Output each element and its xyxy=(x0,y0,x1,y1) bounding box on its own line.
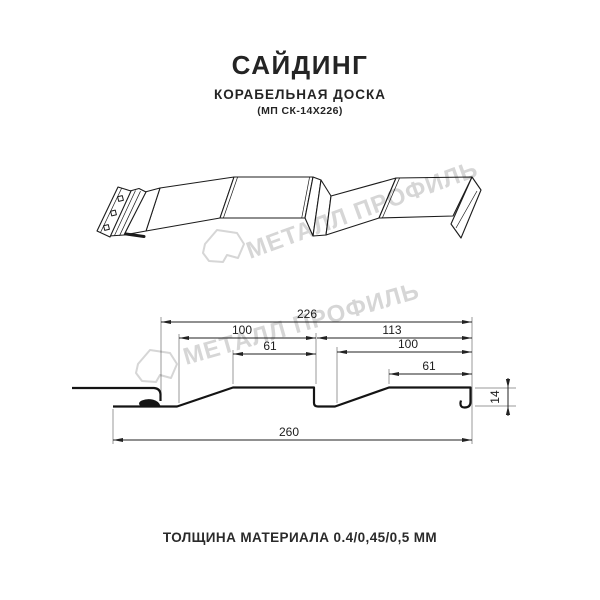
material-thickness-note: ТОЛЩИНА МАТЕРИАЛА 0.4/0,45/0,5 ММ xyxy=(0,530,600,545)
dimension-lines xyxy=(113,322,508,440)
section-profile xyxy=(72,388,471,408)
metal-profil-logo-icon xyxy=(136,350,177,382)
3d-slope1-face xyxy=(146,177,234,231)
metal-profil-logo-icon xyxy=(203,230,244,262)
dim-profile-height: 14 xyxy=(488,390,502,404)
dim-total-width: 260 xyxy=(279,425,299,439)
dim-board2-face: 61 xyxy=(422,359,436,373)
technical-drawing: 226 100 61 113 100 61 260 14 МЕТАЛЛ ПРОФ… xyxy=(0,0,600,600)
product-drawing-page: САЙДИНГ КОРАБЕЛЬНАЯ ДОСКА (МП СК-14Х226) xyxy=(0,0,600,600)
3d-board1-face xyxy=(220,177,313,218)
extension-lines xyxy=(113,317,516,444)
section-lock-curl xyxy=(140,400,160,406)
dim-board2-width: 113 xyxy=(382,323,401,337)
dim-board2-inner: 100 xyxy=(398,337,418,351)
